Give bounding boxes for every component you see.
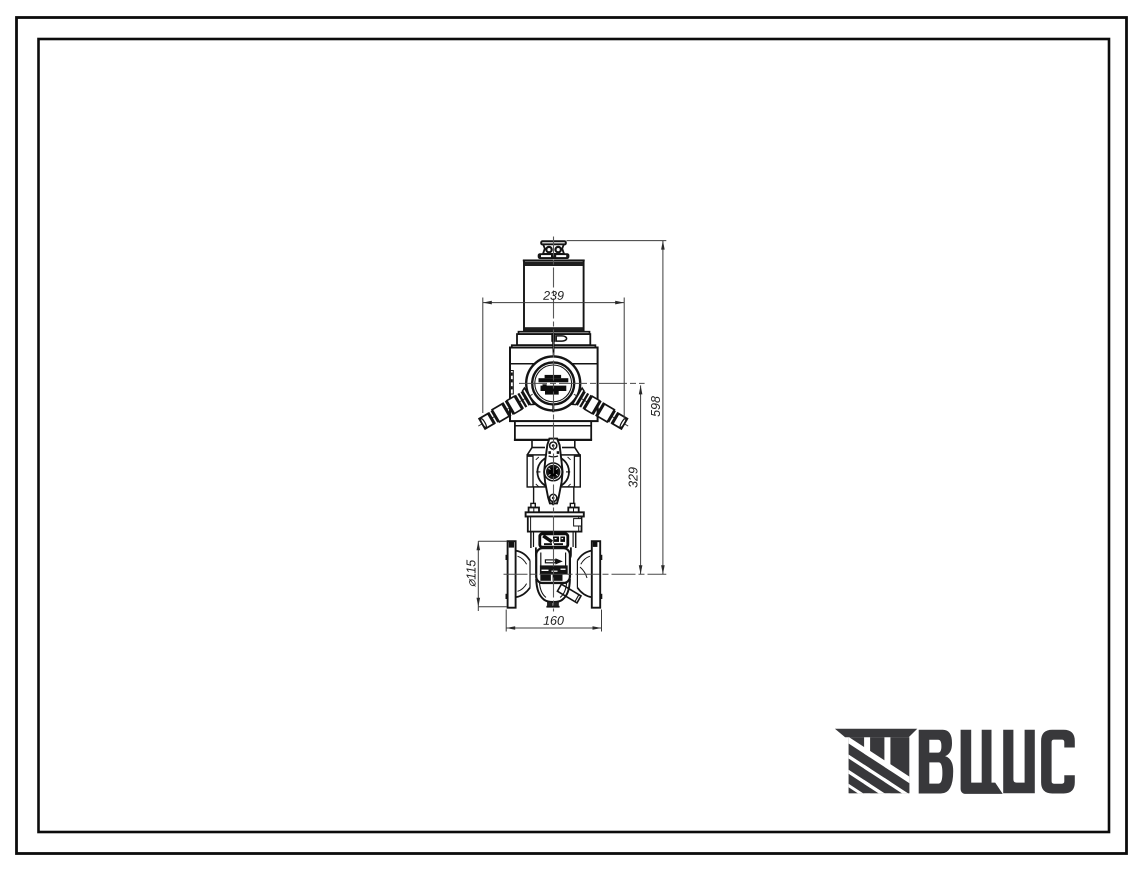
svg-text:⌀115: ⌀115 <box>465 560 479 588</box>
svg-text:239: 239 <box>542 289 564 303</box>
svg-text:598: 598 <box>649 396 663 417</box>
svg-text:329: 329 <box>627 467 641 488</box>
svg-text:160: 160 <box>543 614 564 628</box>
